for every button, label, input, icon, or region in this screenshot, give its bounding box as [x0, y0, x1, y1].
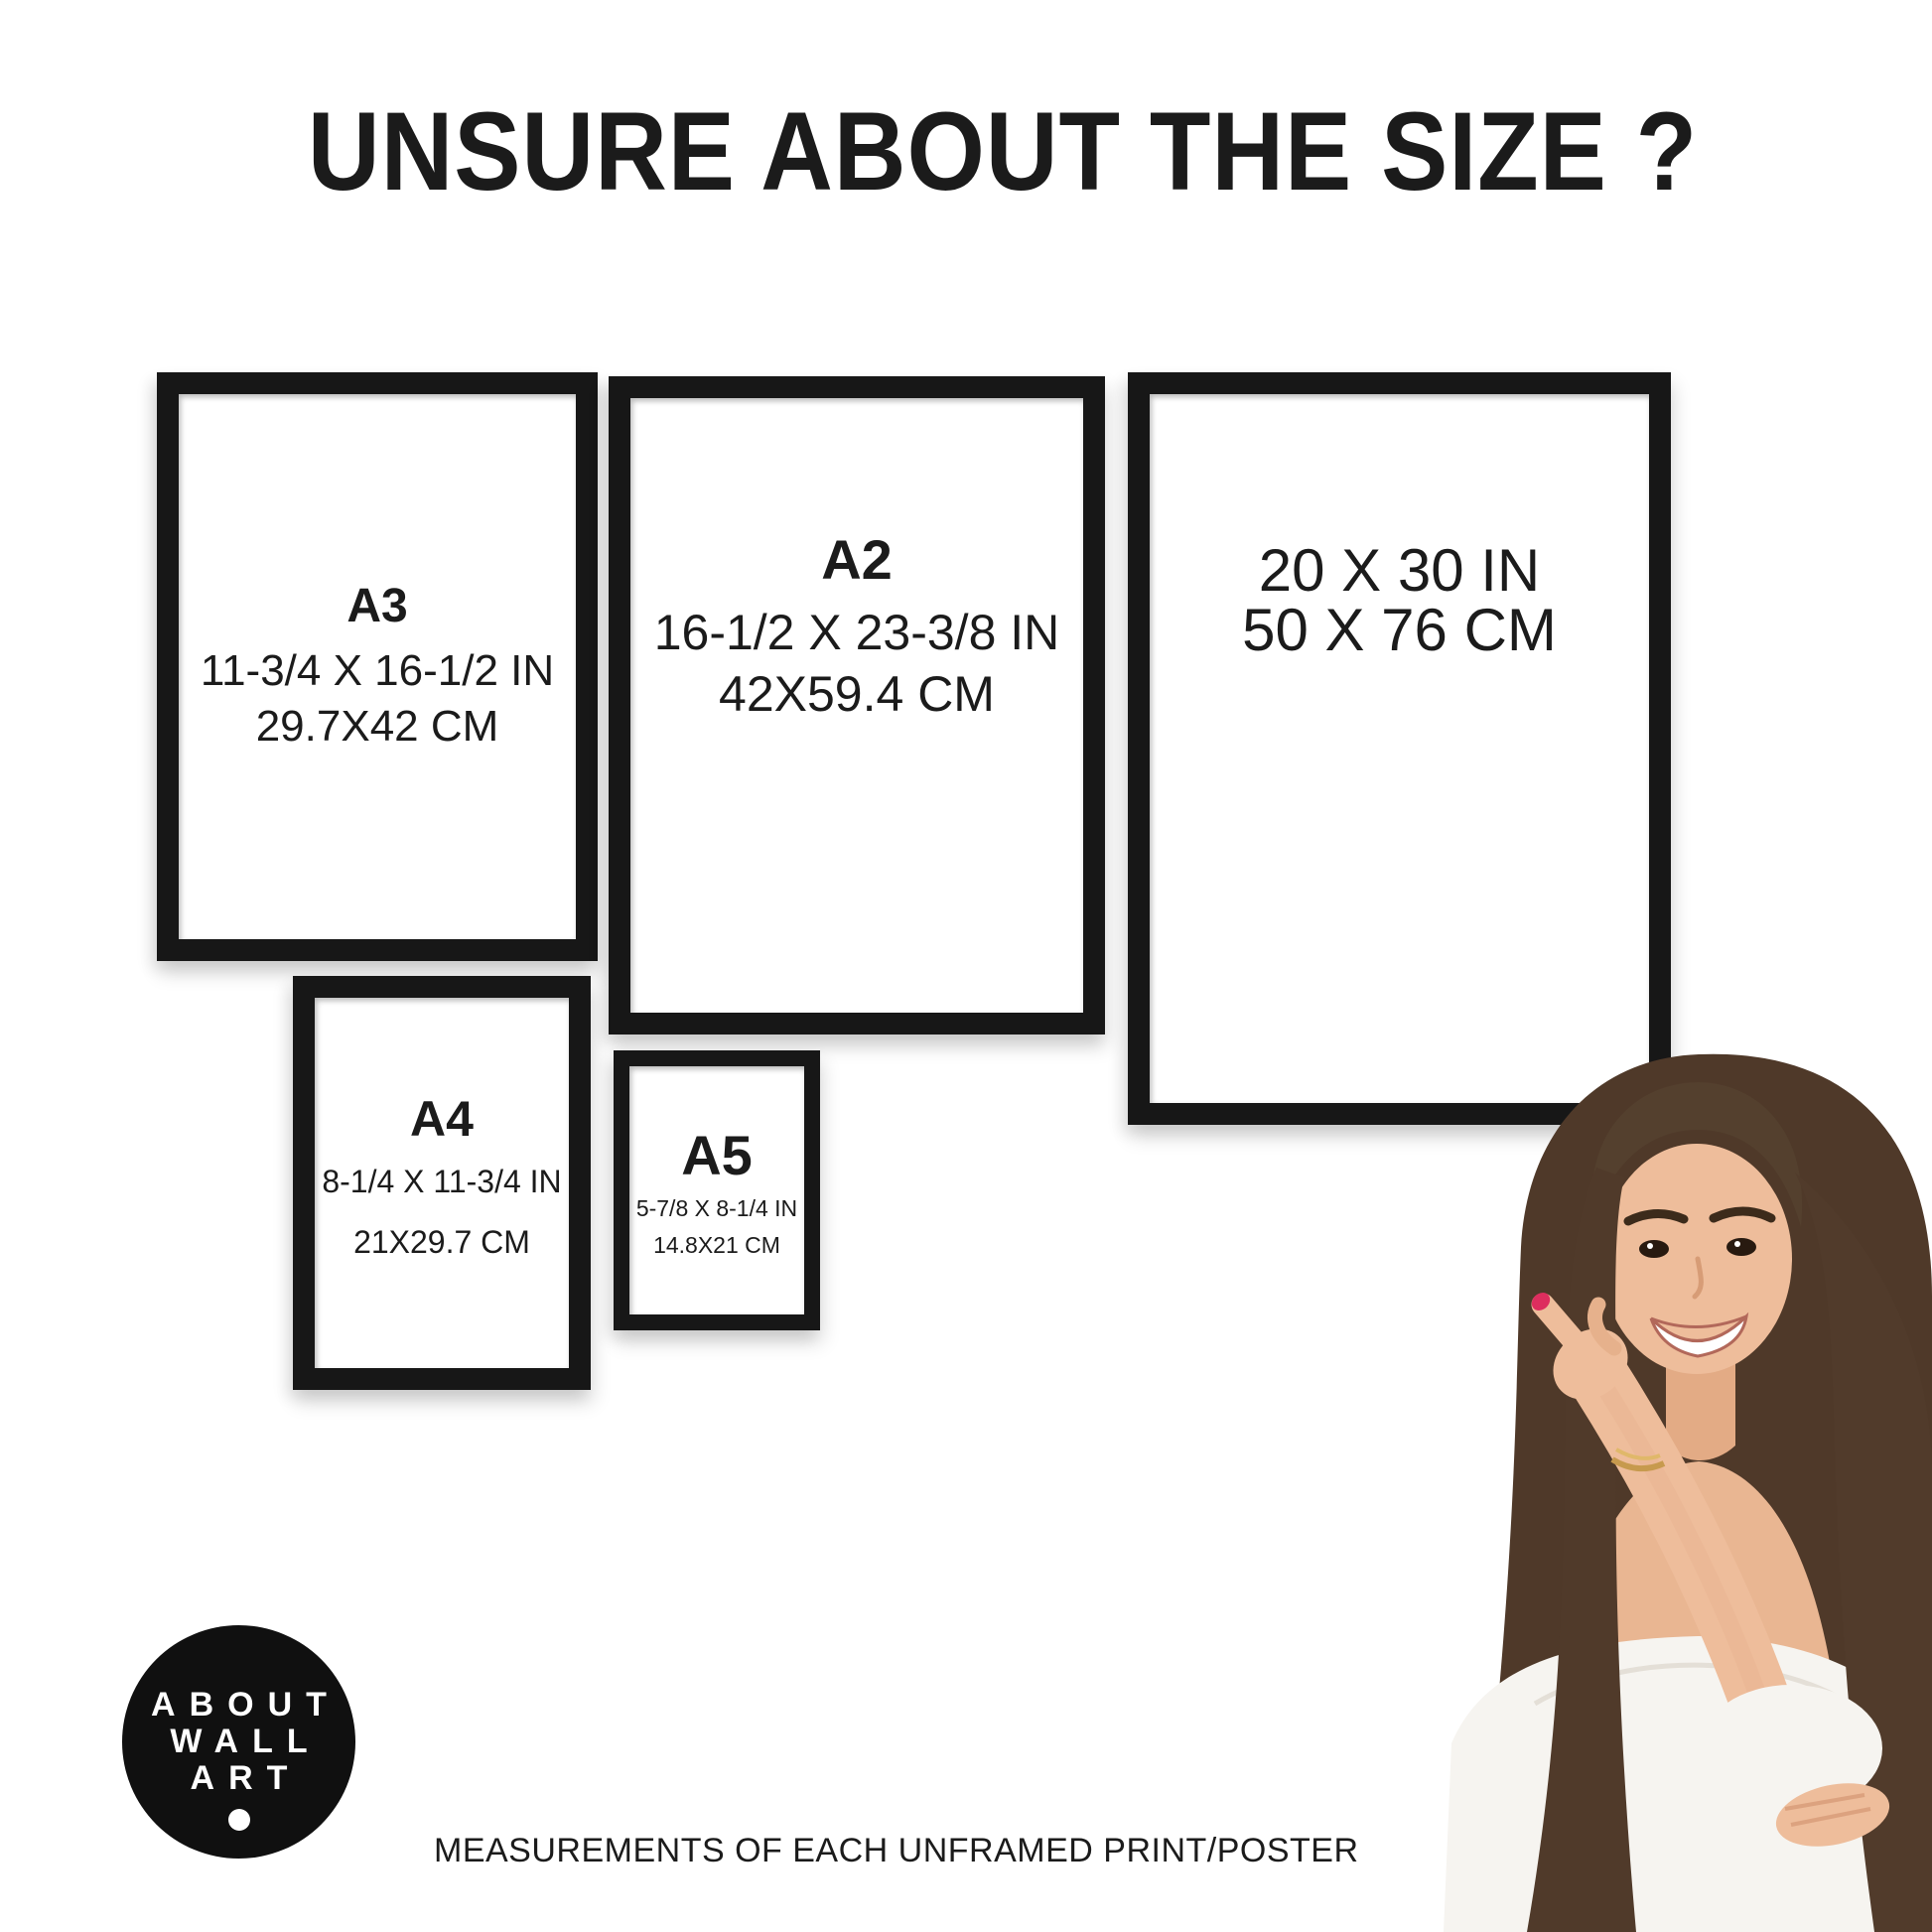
- logo-word-about: ABOUT: [137, 1687, 341, 1724]
- woman-photo: [1416, 1048, 1932, 1932]
- caption: MEASUREMENTS OF EACH UNFRAMED PRINT/POST…: [434, 1832, 1357, 1870]
- frame-a5: A5 5-7/8 X 8-1/4 IN 14.8X21 CM: [614, 1050, 820, 1330]
- brand-logo: ABOUT WALL ART: [122, 1625, 355, 1859]
- frame-a4-inches: 8-1/4 X 11-3/4 IN: [322, 1164, 561, 1200]
- frame-20x30: 20 X 30 IN 50 X 76 CM: [1128, 372, 1671, 1125]
- logo-word-art: ART: [177, 1760, 302, 1797]
- frame-20x30-inches: 20 X 30 IN: [1259, 541, 1541, 601]
- frame-a4: A4 8-1/4 X 11-3/4 IN 21X29.7 CM: [293, 976, 591, 1390]
- frame-a3-size-label: A3: [346, 579, 407, 633]
- frame-a3: A3 11-3/4 X 16-1/2 IN 29.7X42 CM: [157, 372, 598, 961]
- eye-left: [1639, 1240, 1669, 1258]
- poster-size-guide: UNSURE ABOUT THE SIZE ? A3 11-3/4 X 16-1…: [0, 0, 1932, 1932]
- frame-20x30-cm: 50 X 76 CM: [1242, 601, 1557, 660]
- page-title: UNSURE ABOUT THE SIZE ?: [154, 87, 1852, 215]
- eye-right: [1726, 1238, 1756, 1256]
- frame-a3-cm: 29.7X42 CM: [256, 699, 499, 755]
- frame-a2: A2 16-1/2 X 23-3/8 IN 42X59.4 CM: [609, 376, 1105, 1035]
- frame-a5-inches: 5-7/8 X 8-1/4 IN: [636, 1195, 797, 1222]
- frame-a4-size-label: A4: [410, 1090, 474, 1148]
- frame-a4-cm: 21X29.7 CM: [353, 1224, 530, 1261]
- frame-a3-inches: 11-3/4 X 16-1/2 IN: [201, 643, 554, 699]
- frame-a2-inches: 16-1/2 X 23-3/8 IN: [654, 602, 1060, 663]
- frame-a2-size-label: A2: [821, 527, 893, 592]
- frame-a5-cm: 14.8X21 CM: [653, 1232, 780, 1259]
- logo-word-wall: WALL: [156, 1724, 321, 1760]
- logo-dot-icon: [228, 1809, 250, 1831]
- frame-a5-size-label: A5: [681, 1123, 753, 1187]
- frame-a2-cm: 42X59.4 CM: [719, 663, 995, 725]
